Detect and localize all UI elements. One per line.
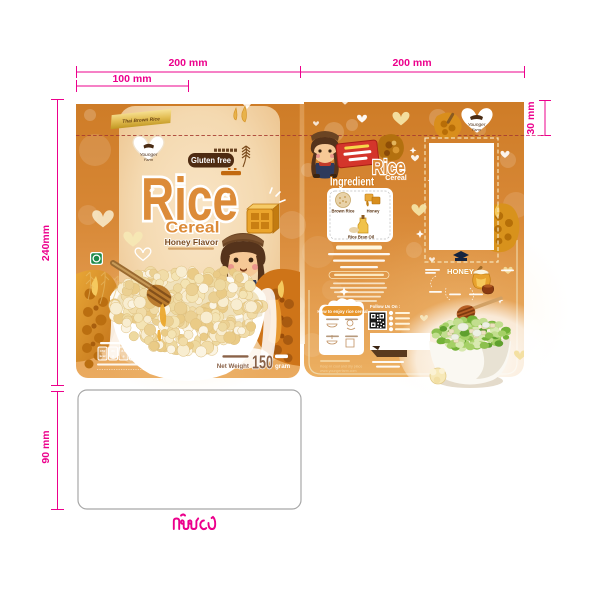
svg-text:Honey Flavor: Honey Flavor	[165, 237, 220, 247]
svg-text:g: g	[123, 354, 125, 358]
svg-text:Cereal: Cereal	[166, 220, 220, 237]
svg-text:90 mm: 90 mm	[40, 430, 52, 463]
svg-text:Follow Us On :: Follow Us On :	[370, 304, 401, 309]
svg-text:kcal: kcal	[100, 354, 106, 358]
svg-text:Keep in cool and dry place: Keep in cool and dry place	[320, 365, 362, 369]
svg-text:200 mm: 200 mm	[168, 57, 207, 69]
svg-text:80: 80	[111, 349, 115, 353]
svg-text:Net Weight: Net Weight	[217, 363, 249, 370]
svg-text:30 mm: 30 mm	[525, 101, 537, 134]
svg-text:Cereal: Cereal	[385, 175, 406, 182]
svg-text:Ingredient: Ingredient	[330, 177, 374, 189]
svg-text:150: 150	[100, 349, 105, 353]
svg-text:g: g	[133, 354, 135, 358]
svg-text:How to enjoy rice cereal: How to enjoy rice cereal	[317, 309, 367, 314]
svg-text:www.youngerfarm.com: www.youngerfarm.com	[320, 369, 357, 373]
svg-text:Farm: Farm	[472, 127, 482, 132]
svg-text:Farm: Farm	[144, 157, 154, 162]
svg-text:240mm: 240mm	[40, 225, 52, 261]
svg-text:2.5: 2.5	[121, 349, 126, 353]
svg-text:150: 150	[252, 352, 273, 373]
svg-text:Honey: Honey	[367, 209, 380, 214]
svg-text:200 mm: 200 mm	[392, 57, 431, 69]
svg-text:gram: gram	[275, 363, 291, 370]
svg-text:Brown Rice: Brown Rice	[331, 209, 355, 214]
svg-text:Gluten free: Gluten free	[191, 155, 231, 165]
svg-text:g: g	[112, 354, 114, 358]
svg-text:Rice Bran Oil: Rice Bran Oil	[348, 235, 374, 240]
svg-text:100 mm: 100 mm	[112, 73, 151, 85]
svg-text:HONEY: HONEY	[447, 267, 474, 276]
